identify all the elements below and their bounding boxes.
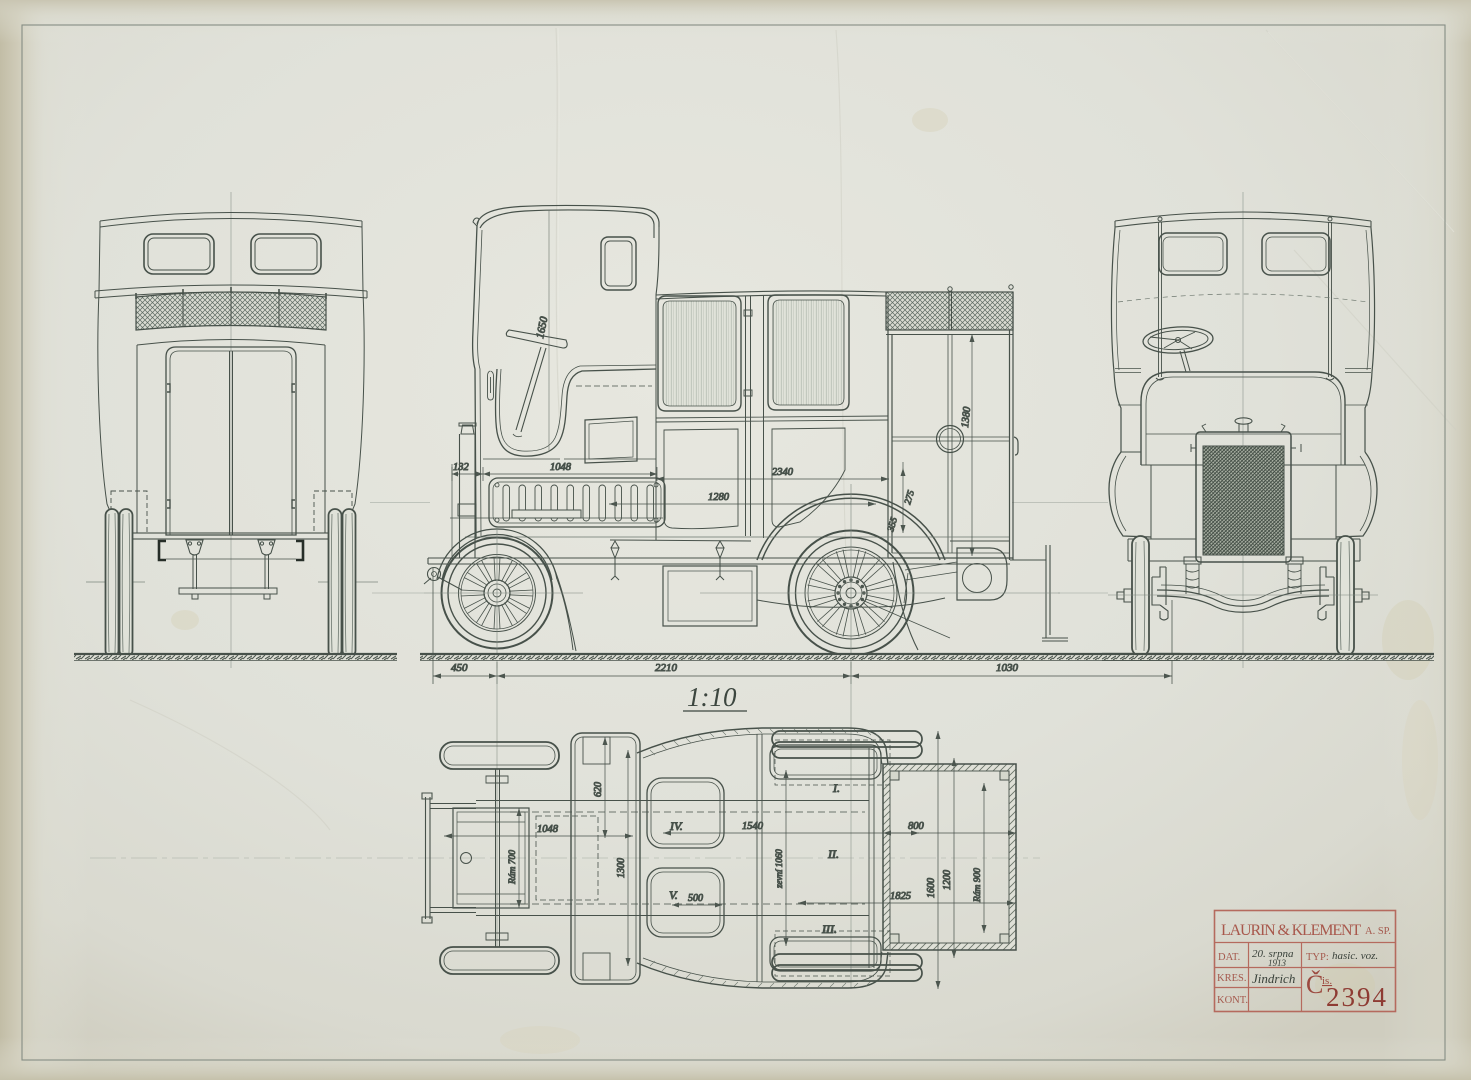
svg-text:A. SP.: A. SP. <box>1365 926 1391 937</box>
svg-text:1280: 1280 <box>708 492 730 503</box>
svg-text:Rám 900: Rám 900 <box>973 868 983 903</box>
svg-text:KONT.: KONT. <box>1217 995 1248 1006</box>
svg-text:Jindrich: Jindrich <box>1252 971 1295 986</box>
svg-text:1030: 1030 <box>996 662 1019 674</box>
svg-text:TYP:: TYP: <box>1306 952 1329 963</box>
svg-text:450: 450 <box>451 662 468 674</box>
svg-text:1600: 1600 <box>926 878 937 898</box>
svg-text:1200: 1200 <box>942 870 953 890</box>
svg-text:DAT.: DAT. <box>1218 952 1240 963</box>
svg-text:II.: II. <box>827 847 839 861</box>
svg-text:1380: 1380 <box>960 406 973 429</box>
svg-text:1048: 1048 <box>537 824 559 835</box>
svg-text:1:10: 1:10 <box>687 682 737 712</box>
svg-text:132: 132 <box>453 462 470 473</box>
svg-text:800: 800 <box>908 821 925 832</box>
svg-text:1540: 1540 <box>742 821 764 832</box>
svg-text:2340: 2340 <box>772 467 794 478</box>
svg-text:I.: I. <box>832 781 840 795</box>
svg-text:III.: III. <box>821 922 837 936</box>
svg-text:Rám 700: Rám 700 <box>508 850 518 885</box>
svg-text:2394: 2394 <box>1326 982 1388 1012</box>
svg-text:hasic. voz.: hasic. voz. <box>1332 950 1378 962</box>
svg-text:1913: 1913 <box>1268 958 1287 968</box>
svg-text:1300: 1300 <box>616 858 627 878</box>
svg-text:IV.: IV. <box>669 819 683 833</box>
svg-text:V.: V. <box>669 888 678 902</box>
svg-text:1048: 1048 <box>550 462 572 473</box>
svg-text:Č: Č <box>1306 970 1323 999</box>
svg-text:LAURIN & KLEMENT: LAURIN & KLEMENT <box>1221 922 1362 939</box>
svg-text:2210: 2210 <box>655 662 678 674</box>
svg-text:1825: 1825 <box>890 891 911 902</box>
svg-text:zevní 1060: zevní 1060 <box>774 849 784 889</box>
svg-text:620: 620 <box>593 782 604 797</box>
svg-text:KRES.: KRES. <box>1217 973 1246 984</box>
svg-text:500: 500 <box>688 893 703 904</box>
